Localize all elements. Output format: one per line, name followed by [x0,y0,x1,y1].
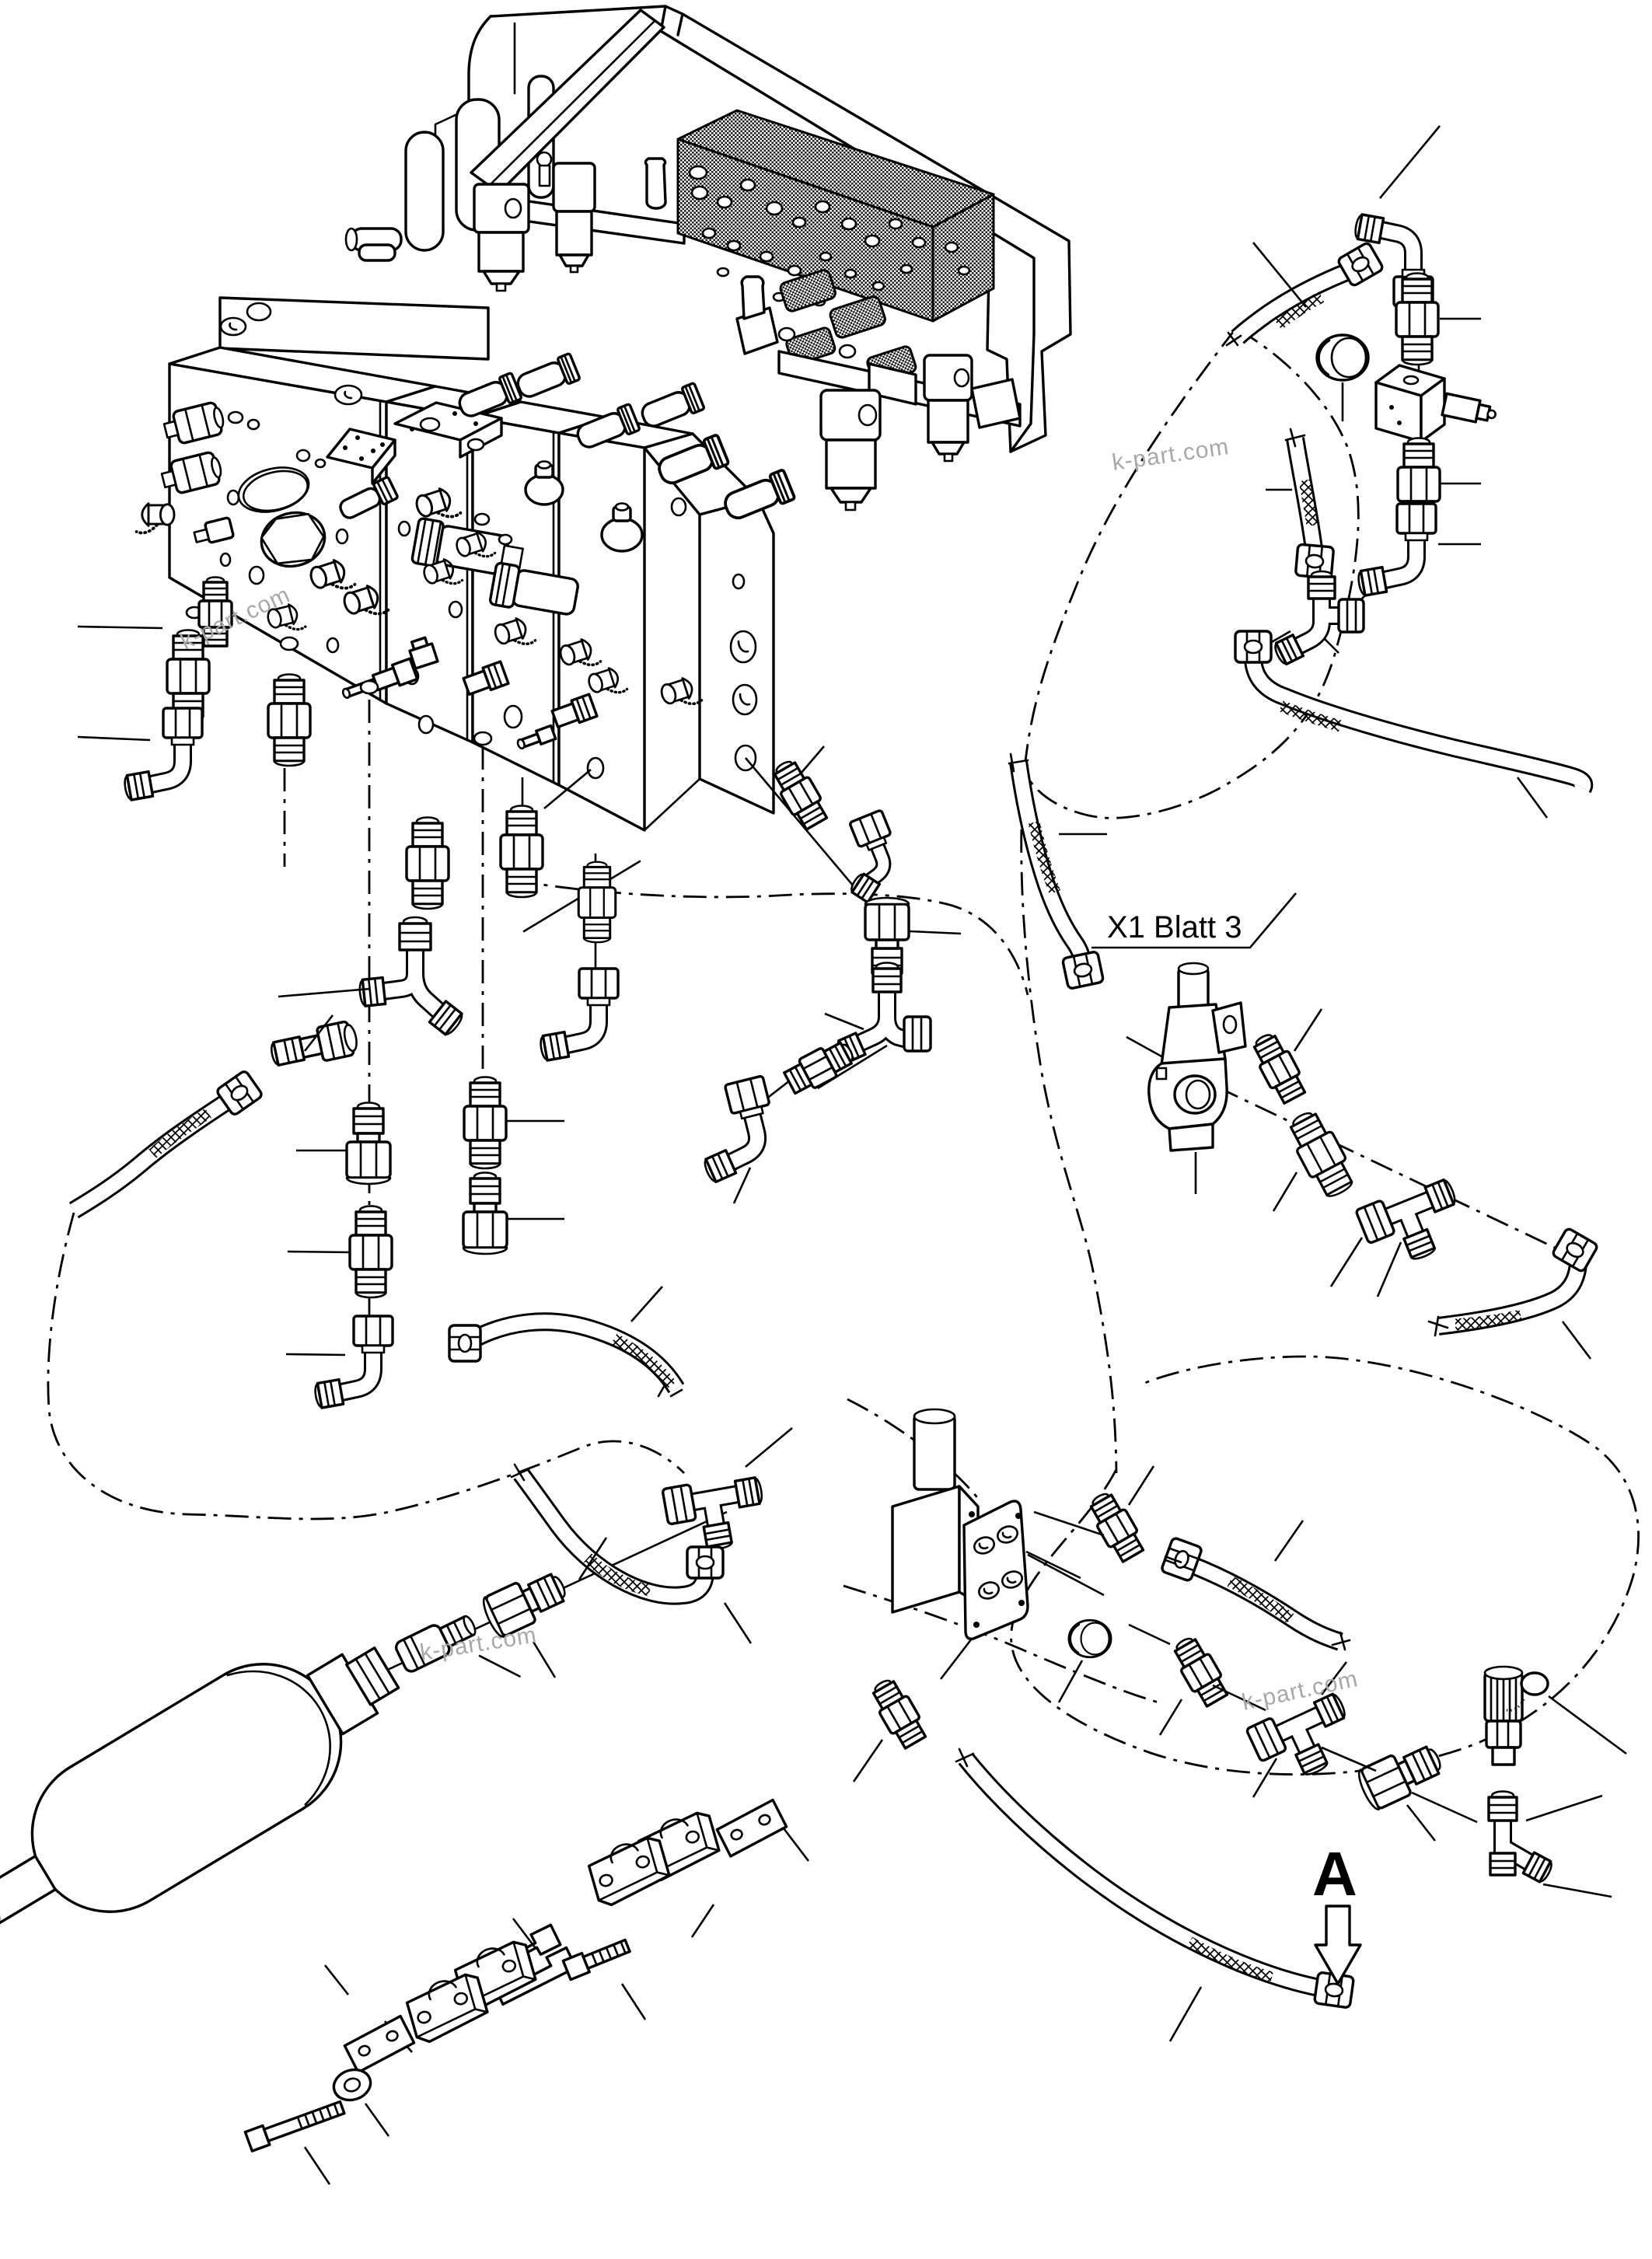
svg-text:X1 Blatt 3: X1 Blatt 3 [1107,910,1242,944]
svg-text:A: A [1312,1839,1357,1908]
